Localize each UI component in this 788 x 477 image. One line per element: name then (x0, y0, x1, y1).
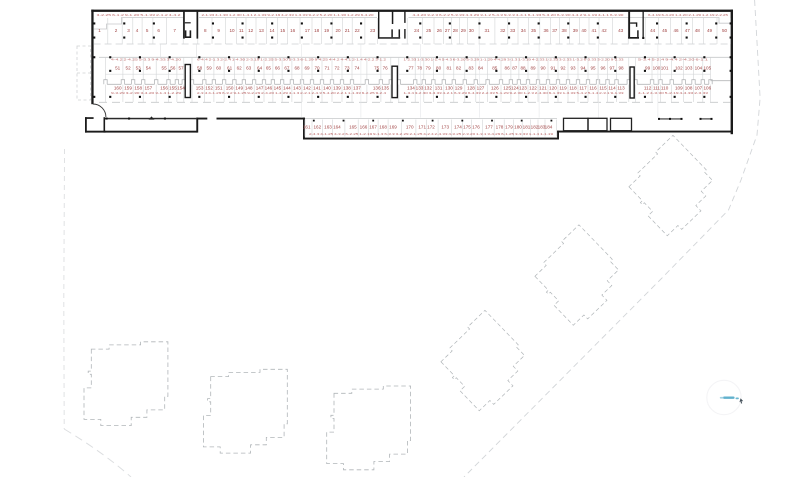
svg-text:140: 140 (323, 85, 331, 90)
svg-text:25: 25 (426, 28, 432, 33)
svg-text:84: 84 (478, 66, 484, 71)
svg-text:31: 31 (484, 28, 490, 33)
svg-text:141: 141 (313, 85, 321, 90)
svg-text:45: 45 (662, 28, 668, 33)
svg-text:101: 101 (661, 66, 669, 71)
svg-text:53: 53 (136, 66, 142, 71)
svg-text:184: 184 (545, 124, 553, 129)
svg-text:146: 146 (265, 85, 273, 90)
svg-text:90: 90 (540, 66, 546, 71)
svg-text:71: 71 (324, 66, 330, 71)
svg-text:29: 29 (461, 28, 467, 33)
svg-text:57: 57 (178, 66, 184, 71)
svg-text:93: 93 (570, 66, 576, 71)
svg-text:148: 148 (245, 85, 253, 90)
svg-text:98: 98 (618, 66, 624, 71)
svg-text:143: 143 (293, 85, 301, 90)
svg-text:157: 157 (144, 85, 152, 90)
svg-text:154: 154 (177, 85, 185, 90)
svg-text:78: 78 (417, 66, 423, 71)
svg-text:14: 14 (269, 28, 275, 33)
svg-text:112: 112 (644, 85, 652, 90)
svg-text:6-4.19 6-4.20 1-4.20 2-1.29 1-: 6-4.19 6-4.20 1-4.20 2-1.29 1-2.19 2-2.2… (648, 13, 729, 17)
svg-text:13: 13 (259, 28, 265, 33)
svg-text:1-2.33 1-3.30 1-1.4 5-4.3 6-3.: 1-2.33 1-3.30 1-1.4 5-4.3 6-3.20 5-3.29 … (404, 57, 625, 61)
svg-text:30: 30 (469, 28, 475, 33)
svg-text:177: 177 (485, 124, 493, 129)
svg-text:22: 22 (355, 28, 361, 33)
svg-text:139: 139 (333, 85, 341, 90)
svg-text:102: 102 (675, 66, 683, 71)
svg-text:2-1.33 4-1.30 1-2.30 1-4.1 2-1: 2-1.33 4-1.30 1-2.30 1-4.1 2-1.33 9-2.19… (202, 13, 375, 17)
svg-text:1-3.4 3-2.30 3-3.33 4-2.1 6-3.: 1-3.4 3-2.30 3-3.33 4-2.1 6-3.29 6-4.33 … (404, 91, 625, 95)
svg-text:138: 138 (343, 85, 351, 90)
svg-text:36: 36 (543, 28, 549, 33)
svg-text:19: 19 (324, 28, 330, 33)
svg-text:51: 51 (115, 66, 121, 71)
svg-text:172: 172 (427, 124, 435, 129)
svg-text:181: 181 (523, 124, 531, 129)
svg-text:17: 17 (305, 28, 311, 33)
svg-text:89: 89 (530, 66, 536, 71)
svg-text:49: 49 (707, 28, 713, 33)
svg-text:5-3.4 5-2.4 9-4.4 2-4.20 6-1.1: 5-3.4 5-2.4 9-4.4 2-4.20 6-1.1 (638, 57, 709, 61)
svg-text:3: 3 (127, 28, 130, 33)
svg-text:133: 133 (416, 85, 424, 90)
svg-text:79: 79 (426, 66, 432, 71)
svg-text:4-4.20 3-2.3 6-2.2 5-3.33 4-3.: 4-4.20 3-2.3 6-2.2 5-3.33 4-3.29 3-1.2 5… (413, 13, 625, 17)
svg-text:64: 64 (257, 66, 263, 71)
svg-text:76: 76 (383, 66, 389, 71)
svg-text:43: 43 (618, 28, 624, 33)
svg-text:162: 162 (313, 124, 321, 129)
svg-text:127: 127 (477, 85, 485, 90)
svg-text:9: 9 (217, 28, 220, 33)
svg-text:142: 142 (303, 85, 311, 90)
svg-text:91: 91 (550, 66, 556, 71)
svg-text:3-2.25 6-1.2 9-1.20 5-1.33 2-1: 3-2.25 6-1.2 9-1.20 5-1.33 2-1.2 4-4.2 (97, 13, 182, 17)
svg-text:40: 40 (581, 28, 587, 33)
svg-text:99: 99 (645, 66, 651, 71)
svg-text:24: 24 (414, 28, 420, 33)
svg-text:147: 147 (256, 85, 264, 90)
svg-text:46: 46 (673, 28, 679, 33)
svg-text:4: 4 (136, 28, 139, 33)
svg-text:176: 176 (472, 124, 480, 129)
svg-text:41: 41 (591, 28, 597, 33)
svg-text:116: 116 (589, 85, 597, 90)
svg-text:100: 100 (653, 66, 661, 71)
svg-text:175: 175 (463, 124, 471, 129)
svg-text:75: 75 (374, 66, 380, 71)
svg-text:158: 158 (134, 85, 142, 90)
svg-text:179: 179 (505, 124, 513, 129)
svg-text:155: 155 (169, 85, 177, 90)
svg-text:151: 151 (215, 85, 223, 90)
svg-text:87: 87 (512, 66, 518, 71)
svg-text:113: 113 (617, 85, 625, 90)
svg-text:131: 131 (435, 85, 443, 90)
svg-text:145: 145 (274, 85, 282, 90)
svg-text:15: 15 (280, 28, 286, 33)
svg-text:56: 56 (170, 66, 176, 71)
svg-text:61: 61 (227, 66, 233, 71)
svg-text:62: 62 (237, 66, 243, 71)
svg-text:11: 11 (239, 28, 244, 33)
svg-text:33: 33 (510, 28, 516, 33)
svg-text:160: 160 (114, 85, 122, 90)
svg-text:34: 34 (521, 28, 527, 33)
svg-text:6-4.4 2-1.3 2-2.4 1-4.30 2-3.1: 6-4.4 2-1.3 2-2.4 1-4.30 2-3.19 1-2.25 5… (197, 57, 387, 61)
svg-text:77: 77 (408, 66, 414, 71)
svg-text:7: 7 (173, 28, 176, 33)
svg-text:81: 81 (446, 66, 452, 71)
svg-text:20: 20 (335, 28, 341, 33)
svg-text:67: 67 (284, 66, 290, 71)
svg-text:94: 94 (580, 66, 586, 71)
svg-text:136: 136 (373, 85, 381, 90)
svg-text:166: 166 (360, 124, 368, 129)
svg-text:85: 85 (492, 66, 498, 71)
svg-text:80: 80 (436, 66, 442, 71)
svg-text:120: 120 (549, 85, 557, 90)
svg-text:97: 97 (609, 66, 615, 71)
svg-text:72: 72 (334, 66, 340, 71)
svg-text:171: 171 (418, 124, 426, 129)
svg-text:170: 170 (406, 124, 414, 129)
svg-text:149: 149 (235, 85, 243, 90)
svg-text:39: 39 (573, 28, 579, 33)
svg-text:178: 178 (496, 124, 504, 129)
svg-text:73: 73 (344, 66, 350, 71)
svg-text:4-1.2 4-3.30 5-2.19 4-4.33 2-3: 4-1.2 4-3.30 5-2.19 4-4.33 2-3.33 (638, 91, 709, 95)
svg-text:180: 180 (514, 124, 522, 129)
svg-text:164: 164 (333, 124, 341, 129)
svg-text:44: 44 (650, 28, 656, 33)
svg-text:16: 16 (290, 28, 296, 33)
svg-text:109: 109 (675, 85, 683, 90)
svg-text:54: 54 (146, 66, 152, 71)
svg-text:95: 95 (590, 66, 596, 71)
svg-text:12: 12 (248, 28, 254, 33)
svg-text:37: 37 (552, 28, 558, 33)
svg-text:107: 107 (695, 85, 703, 90)
svg-text:119: 119 (559, 85, 567, 90)
svg-text:128: 128 (467, 85, 475, 90)
svg-text:88: 88 (520, 66, 526, 71)
svg-text:1: 1 (98, 28, 101, 33)
svg-text:8: 8 (204, 28, 207, 33)
svg-text:163: 163 (324, 124, 332, 129)
svg-text:2-3.4 4-1.29 6-3.2 9-1.25 9-2.: 2-3.4 4-1.29 6-3.2 9-1.25 9-2.29 2-4.20 … (197, 91, 387, 95)
svg-text:135: 135 (381, 85, 389, 90)
svg-text:159: 159 (124, 85, 132, 90)
svg-text:105: 105 (703, 66, 711, 71)
svg-text:32: 32 (500, 28, 506, 33)
svg-text:137: 137 (353, 85, 361, 90)
svg-text:58: 58 (197, 66, 203, 71)
svg-text:129: 129 (455, 85, 463, 90)
svg-text:60: 60 (216, 66, 222, 71)
svg-text:86: 86 (505, 66, 511, 71)
svg-text:114: 114 (608, 85, 616, 90)
svg-text:10: 10 (229, 28, 235, 33)
svg-text:92: 92 (560, 66, 566, 71)
svg-text:121: 121 (539, 85, 547, 90)
svg-text:161: 161 (303, 124, 311, 129)
svg-text:26: 26 (437, 28, 443, 33)
svg-text:50: 50 (722, 28, 728, 33)
svg-text:83: 83 (468, 66, 474, 71)
svg-text:104: 104 (695, 66, 703, 71)
svg-text:9-3.29 3-2.30 3-4.20 3-1.4 1-2: 9-3.29 3-2.30 3-4.20 3-1.4 1-2.29 (111, 91, 182, 95)
svg-text:6: 6 (157, 28, 160, 33)
svg-text:165: 165 (349, 124, 357, 129)
svg-text:2: 2 (115, 28, 118, 33)
svg-text:5: 5 (146, 28, 149, 33)
svg-text:63: 63 (246, 66, 252, 71)
svg-text:66: 66 (275, 66, 281, 71)
svg-text:174: 174 (454, 124, 462, 129)
svg-text:18: 18 (314, 28, 320, 33)
svg-text:126: 126 (491, 85, 499, 90)
svg-text:103: 103 (685, 66, 693, 71)
svg-text:28: 28 (453, 28, 459, 33)
svg-text:123: 123 (519, 85, 527, 90)
svg-text:115: 115 (599, 85, 607, 90)
svg-text:150: 150 (226, 85, 234, 90)
svg-text:168: 168 (379, 124, 387, 129)
svg-text:70: 70 (314, 66, 320, 71)
svg-text:35: 35 (531, 28, 537, 33)
svg-text:38: 38 (562, 28, 568, 33)
svg-text:23: 23 (370, 28, 376, 33)
svg-text:42: 42 (602, 28, 608, 33)
svg-text:82: 82 (456, 66, 462, 71)
svg-text:173: 173 (441, 124, 449, 129)
svg-text:2-4.3 4-1.25 4-3.2 6-2.25 1-2.: 2-4.3 4-1.25 4-3.2 6-2.25 1-2.19 9-1.3 6… (309, 132, 554, 136)
svg-text:132: 132 (424, 85, 432, 90)
svg-text:167: 167 (369, 124, 377, 129)
svg-text:65: 65 (266, 66, 272, 71)
svg-text:152: 152 (205, 85, 213, 90)
svg-text:74: 74 (354, 66, 360, 71)
svg-text:122: 122 (529, 85, 537, 90)
svg-text:110: 110 (661, 85, 669, 90)
svg-text:27: 27 (445, 28, 451, 33)
svg-text:68: 68 (294, 66, 300, 71)
svg-text:134: 134 (407, 85, 415, 90)
svg-text:106: 106 (703, 85, 711, 90)
svg-text:96: 96 (600, 66, 606, 71)
svg-text:169: 169 (389, 124, 397, 129)
svg-text:48: 48 (695, 28, 701, 33)
svg-text:124: 124 (511, 85, 519, 90)
svg-text:21: 21 (345, 28, 351, 33)
svg-text:4-4.2 2-4.25 5-3.3 9-4.33 3-4.: 4-4.2 2-4.25 5-3.3 9-4.33 3-4.20 (111, 57, 182, 61)
svg-text:153: 153 (196, 85, 204, 90)
svg-text:118: 118 (569, 85, 577, 90)
svg-text:47: 47 (685, 28, 691, 33)
svg-text:52: 52 (126, 66, 132, 71)
svg-text:55: 55 (162, 66, 168, 71)
svg-text:117: 117 (579, 85, 587, 90)
svg-text:59: 59 (207, 66, 213, 71)
svg-text:69: 69 (304, 66, 310, 71)
svg-text:144: 144 (283, 85, 291, 90)
svg-text:108: 108 (685, 85, 693, 90)
svg-text:130: 130 (445, 85, 453, 90)
svg-text:111: 111 (653, 85, 660, 90)
svg-text:156: 156 (160, 85, 168, 90)
